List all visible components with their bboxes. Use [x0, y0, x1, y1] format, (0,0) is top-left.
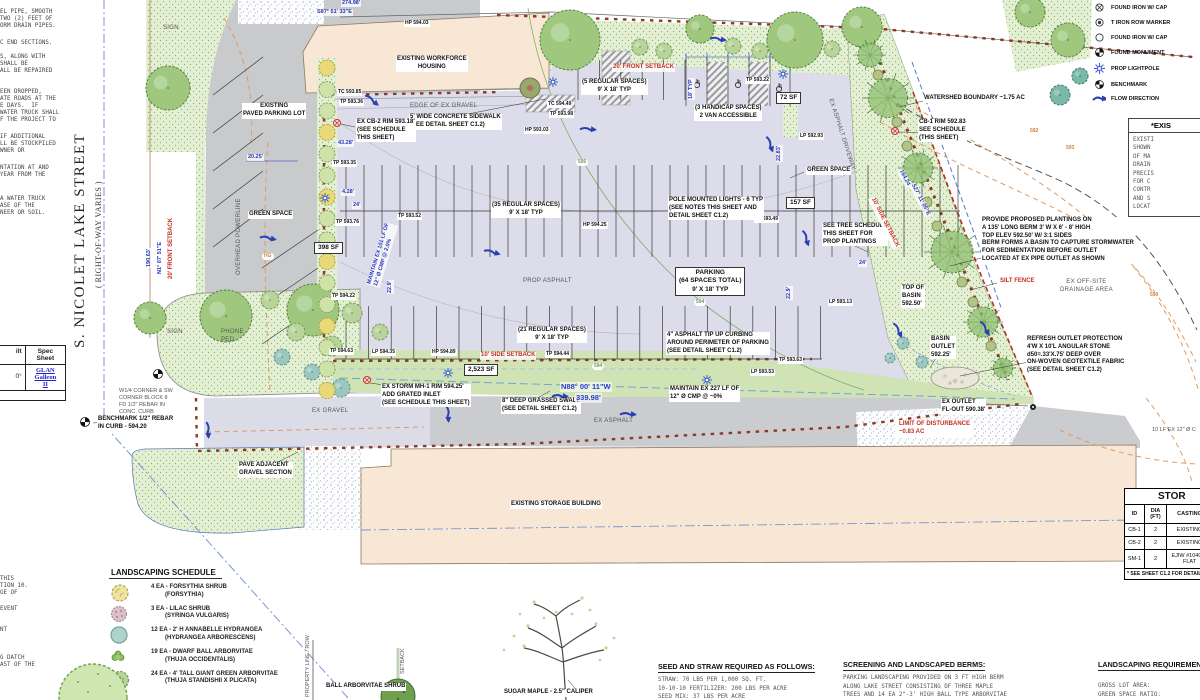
circle-x-icon [1092, 2, 1106, 13]
note-fragment: F THE PROJECT TO [0, 117, 56, 123]
seed-straw-title: SEED AND STRAW REQUIRED AS FOLLOWS: [658, 662, 815, 673]
plan-annotation: LP 593.13 [828, 299, 853, 306]
plan-annotation: TP 593.35 [332, 160, 357, 167]
plan-annotation: LIMIT OF DISTURBANCE ~0.83 AC [897, 420, 972, 438]
legend-item: PROP LIGHTPOLE [1092, 62, 1198, 75]
plan-annotation: TP 593.52 [397, 213, 422, 220]
note-fragment: A WATER TRUCK [0, 196, 45, 202]
legend-item: FLOW DIRECTION [1092, 94, 1198, 103]
storm-cell: SM-1 [1125, 550, 1145, 569]
storm-header-cell: DIA (FT) [1145, 505, 1167, 524]
plan-annotation: EX OUTLET FL-OUT 590.38' [941, 399, 986, 415]
plan-annotation: 22.9' [786, 286, 793, 300]
plan-annotation: PROVIDE PROPOSED PLANTINGS ON A 135' LON… [981, 217, 1135, 264]
plan-annotation: LP 592.93 [799, 133, 824, 140]
storm-cell: EXISTING [1167, 537, 1200, 550]
note-fragment: EL PIPE, SMOOTH [0, 9, 52, 15]
plan-annotation: SIGN [163, 25, 179, 33]
storm-header-cell: ID [1125, 505, 1145, 524]
plan-annotation: 190.63' [146, 248, 153, 268]
plan-annotation: SEE TREE SCHEDULE THIS SHEET FOR PROP PL… [822, 223, 888, 246]
plan-annotation: TP 593.22 [745, 77, 770, 84]
monument-icon [1092, 47, 1106, 58]
plan-annotation: PARKING (64 SPACES TOTAL) 9' X 18' TYP [675, 267, 745, 296]
note-fragment: IF ADDITIONAL [0, 134, 45, 140]
plan-annotation: 594 [694, 299, 706, 306]
plan-annotation: 20.25' [247, 154, 264, 161]
plan-annotation: PROP ASPHALT [523, 278, 572, 286]
plan-annotation: EDGE OF EX GRAVEL [410, 103, 477, 111]
legend-item: FOUND IRON W/ CAP [1092, 32, 1198, 43]
plan-annotation: 4.28' [341, 189, 355, 196]
plan-annotation: EX CB-2 RIM 593.18' (SEE SCHEDULE THIS S… [356, 119, 416, 142]
spec-col1-value: 0° [0, 365, 26, 390]
landscaping-requirements: LANDSCAPING REQUIREMENT GROSS LOT AREA: … [1098, 654, 1200, 700]
street-row-label: ( RIGHT-OF-WAY VARIES ) [94, 181, 103, 288]
plan-annotation: EXISTING WORKFORCE HOUSING [396, 56, 468, 72]
plan-annotation: WATERSHED BOUNDARY ~1.75 AC [923, 95, 1026, 103]
plan-annotation: N1° 07' 51"E [157, 241, 164, 275]
plan-annotation: EXISTING STORAGE BUILDING [510, 501, 602, 509]
plan-annotation: 72 SF [776, 92, 801, 104]
plan-annotation: 8" DEEP GRASSED SWALE (SEE DETAIL SHEET … [501, 398, 581, 414]
landscaping-schedule-title: LANDSCAPING SCHEDULE [109, 568, 222, 579]
street-name-label: S. NICOLET LAKE STREET [72, 133, 89, 348]
note-fragment: LL BE STOCKPILED [0, 141, 56, 147]
plan-annotation: TP 594.63 [329, 348, 354, 355]
plan-annotation: 592 [1028, 128, 1040, 135]
spec-sheet-table: ilt Spec Sheet 0° GLAN Galleon II [0, 345, 66, 401]
plan-annotation: POLE MOUNTED LIGHTS - 6 TYP (SEE NOTES T… [668, 197, 764, 220]
legend-item: T IRON ROW MARKER [1092, 17, 1198, 28]
storm-structure-table: STOR IDDIA (FT)CASTINGCB-12EXISTINGCB-22… [1124, 488, 1200, 580]
note-fragment: THIS [0, 576, 14, 582]
plan-annotation: TOP OF BASIN 592.50' [901, 285, 925, 308]
screening-title: SCREENING AND LANDSCAPED BERMS: [843, 660, 985, 671]
note-fragment: SHALL BE [0, 61, 28, 67]
existing-storage-building [361, 445, 1136, 564]
plan-annotation: TP 593.63 [778, 357, 803, 364]
seed-straw-notes: SEED AND STRAW REQUIRED AS FOLLOWS: STRA… [658, 656, 853, 700]
plan-annotation: GREEN SPACE [248, 211, 293, 219]
circle-icon [1092, 32, 1106, 43]
note-fragment: EEN DROPPED, [0, 89, 42, 95]
plan-annotation: BENCHMARK 1/2" REBAR IN CURB - 594.20 [97, 416, 174, 432]
plan-annotation: SILT FENCE [999, 278, 1036, 286]
plan-annotation: N88° 00' 11"W [560, 382, 612, 392]
plan-annotation: 594 [592, 363, 604, 370]
plan-annotation: 10 LF EX 12" Ø C [1152, 427, 1196, 434]
plan-annotation: 22.83' [776, 145, 783, 162]
plan-annotation: EXISTING PAVED PARKING LOT [242, 103, 306, 119]
lightpole-icon [1092, 62, 1106, 75]
plan-annotation: PHONE PED. [221, 329, 244, 345]
plan-annotation: BALL ARBORVITAE SHRUB [325, 683, 406, 691]
existing-utilities-note: *EXIS EXISTI SHOWN OF MA DRAIN PRECIS FO… [1128, 118, 1200, 217]
benchmark-icon [1092, 79, 1106, 90]
storm-cell: EXISTING [1167, 524, 1200, 537]
plan-annotation: 5' WIDE CONCRETE SIDEWALK (SEE DETAIL SH… [409, 114, 502, 130]
handicap-hatch [707, 62, 727, 106]
plan-annotation: TP 593.76 [335, 219, 360, 226]
plan-annotation: HP 594.25 [582, 222, 608, 229]
note-fragment: EVENT [0, 606, 17, 612]
plan-annotation: 22.9' [387, 280, 394, 294]
plan-annotation: 24' [352, 202, 361, 209]
plan-annotation: 2,523 SF [464, 364, 498, 376]
plan-annotation: SIGN [167, 329, 183, 337]
plan-annotation: 595 [576, 159, 588, 166]
plan-annotation: HG [262, 253, 274, 260]
plan-annotation: GREEN SPACE [806, 167, 851, 175]
note-fragment: WATER TRUCK SHALL [0, 110, 59, 116]
note-fragment: ORM DRAIN PIPES. [0, 23, 56, 29]
storm-cell: CB-2 [1125, 537, 1145, 550]
sugar-maple-branches [524, 600, 604, 700]
legend-item: FOUND MONUMENT [1092, 47, 1198, 58]
plan-annotation: S87° 51' 33"E [316, 9, 353, 16]
handicap-hatch [748, 62, 768, 106]
note-fragment: E DAYS. IF [0, 103, 38, 109]
plan-annotation: LP 593.53 [750, 369, 775, 376]
plan-annotation: EX OFF-SITE DRAINAGE AREA [1060, 279, 1113, 295]
plan-annotation: 20' FRONT SETBACK [612, 64, 675, 72]
plan-annotation: EX STORM MH-1 RIM 594.25' ADD GRATED INL… [381, 384, 471, 407]
storm-cell: 2 [1145, 550, 1167, 569]
landscaping-requirements-title: LANDSCAPING REQUIREMENT [1098, 660, 1200, 671]
plan-annotation: 10' SIDE SETBACK [480, 352, 536, 360]
note-fragment: GE OF [0, 590, 17, 596]
storm-table-title: STOR [1125, 489, 1200, 505]
plan-annotation: TC 594.49 [547, 101, 572, 108]
plan-annotation: EX GRAVEL [312, 408, 348, 416]
screening-berms-notes: SCREENING AND LANDSCAPED BERMS: PARKING … [843, 654, 1073, 700]
storm-cell: CB-1 [1125, 524, 1145, 537]
plan-annotation: (21 REGULAR SPACES) 9' X 18' TYP [517, 327, 587, 343]
circle-dot-icon [1092, 17, 1106, 28]
storm-table-footnote: * SEE SHEET C1.2 FOR DETAIL [1125, 569, 1200, 579]
plan-annotation: 274.98' [341, 0, 361, 7]
plan-annotation: BASIN OUTLET 592.25' [930, 336, 956, 359]
plan-annotation: W1/4 CORNER & SW CORNER BLOCK 8 FD 1/2" … [119, 388, 173, 417]
plan-annotation: HP 593.03 [524, 127, 550, 134]
existing-note-title: *EXIS [1129, 119, 1200, 133]
plan-annotation: 43.28' [337, 140, 354, 147]
storm-cell: 2 [1145, 524, 1167, 537]
plan-annotation: TP 594.22 [331, 293, 356, 300]
plan-annotation: 157 SF [786, 197, 815, 209]
legend-item: BENCHMARK [1092, 79, 1198, 90]
survey-legend: FOUND IRON W/ CAPT IRON ROW MARKERFOUND … [1092, 2, 1198, 103]
plan-annotation: 398 SF [314, 242, 343, 254]
pave-adjacent-gravel-area [132, 447, 304, 533]
note-fragment: TWO (2) FEET OF [0, 16, 52, 22]
plan-annotation: MAINTAIN EX 227 LF OF 12" Ø CMP @ ~0% [669, 386, 740, 402]
large-shrub-icon [48, 660, 138, 700]
plan-annotation: EX ASPHALT [594, 418, 633, 426]
spec-col2-header: Spec Sheet [26, 346, 65, 364]
plan-annotation: 590 [1148, 292, 1160, 299]
storm-cell: EJIW #1040 M FLAT [1167, 550, 1200, 569]
plan-annotation: (3 HANDICAP SPACES) 2 VAN ACCESSIBLE [694, 105, 762, 121]
plan-annotation: LP 594.35 [371, 349, 396, 356]
note-fragment: NEER OR SOIL. [0, 210, 45, 216]
note-fragment: NT [0, 627, 7, 633]
legend-item: FOUND IRON W/ CAP [1092, 2, 1198, 13]
plan-annotation: OVERHEAD POWERLINE [236, 198, 244, 275]
note-fragment: ALL BE REPAIRED [0, 68, 52, 74]
note-fragment: ATE ROADS AT THE [0, 96, 56, 102]
note-fragment: C END SECTIONS. [0, 40, 52, 46]
plan-annotation: (35 REGULAR SPACES) 9' X 18' TYP [491, 202, 561, 218]
plan-annotation: SETBACK [400, 648, 407, 674]
plan-annotation: REFRESH OUTLET PROTECTION 4'W X 10'L ANG… [1026, 336, 1125, 375]
plan-annotation: TC 593.85 [337, 89, 362, 96]
plan-annotation: 20' FRONT SETBACK [168, 217, 176, 280]
note-fragment: TION 10. [0, 583, 28, 589]
plan-annotation: 4" ASPHALT TIP UP CURBING AROUND PERIMET… [666, 332, 770, 355]
plan-annotation: 339.98' [575, 393, 602, 403]
landscaping-schedule: LANDSCAPING SCHEDULE 4 EA - FORSYTHIA SH… [95, 562, 435, 580]
note-fragment: G DATCH [0, 655, 24, 661]
note-fragment: S, ALONG WITH [0, 54, 45, 60]
plan-annotation: TP 593.36 [339, 99, 364, 106]
plan-annotation: HP 594.89 [431, 349, 457, 356]
spec-col1-header: ilt [0, 346, 26, 364]
flow-arrow-icon [1092, 94, 1106, 103]
spec-sheet-link[interactable]: GLAN Galleon II [35, 367, 57, 388]
plan-annotation: HP 594.03 [404, 20, 430, 27]
plan-annotation: SUGAR MAPLE - 2.5" CALIPER [503, 689, 594, 697]
plan-annotation: TP 594.44 [545, 351, 570, 358]
note-fragment: ASE OF THE [0, 203, 35, 209]
plan-annotation: CB-1 RIM 592.83 SEE SCHEDULE (THIS SHEET… [918, 119, 967, 142]
note-fragment: AST OF THE [0, 662, 35, 668]
site-plan-sheet: EL PIPE, SMOOTHTWO (2) FEET OFORM DRAIN … [0, 0, 1200, 700]
plan-annotation: PAVE ADJACENT GRAVEL SECTION [238, 462, 293, 478]
storm-cell: 2 [1145, 537, 1167, 550]
note-fragment: NTATION AT AND [0, 165, 49, 171]
note-fragment: WNER OR [0, 148, 24, 154]
plan-annotation: (5 REGULAR SPACES) 9' X 18' TYP [581, 79, 648, 95]
plan-annotation: 24' [858, 260, 867, 267]
plan-annotation: 593 [1064, 145, 1076, 152]
note-fragment: YEAR FROM THE [0, 172, 45, 178]
plan-annotation: 18' TYP [688, 78, 695, 100]
plan-annotation: TP 593.98 [549, 111, 574, 118]
storm-header-cell: CASTING [1167, 505, 1200, 524]
plan-annotation: PROPERTY LINE / ROW [305, 635, 312, 697]
